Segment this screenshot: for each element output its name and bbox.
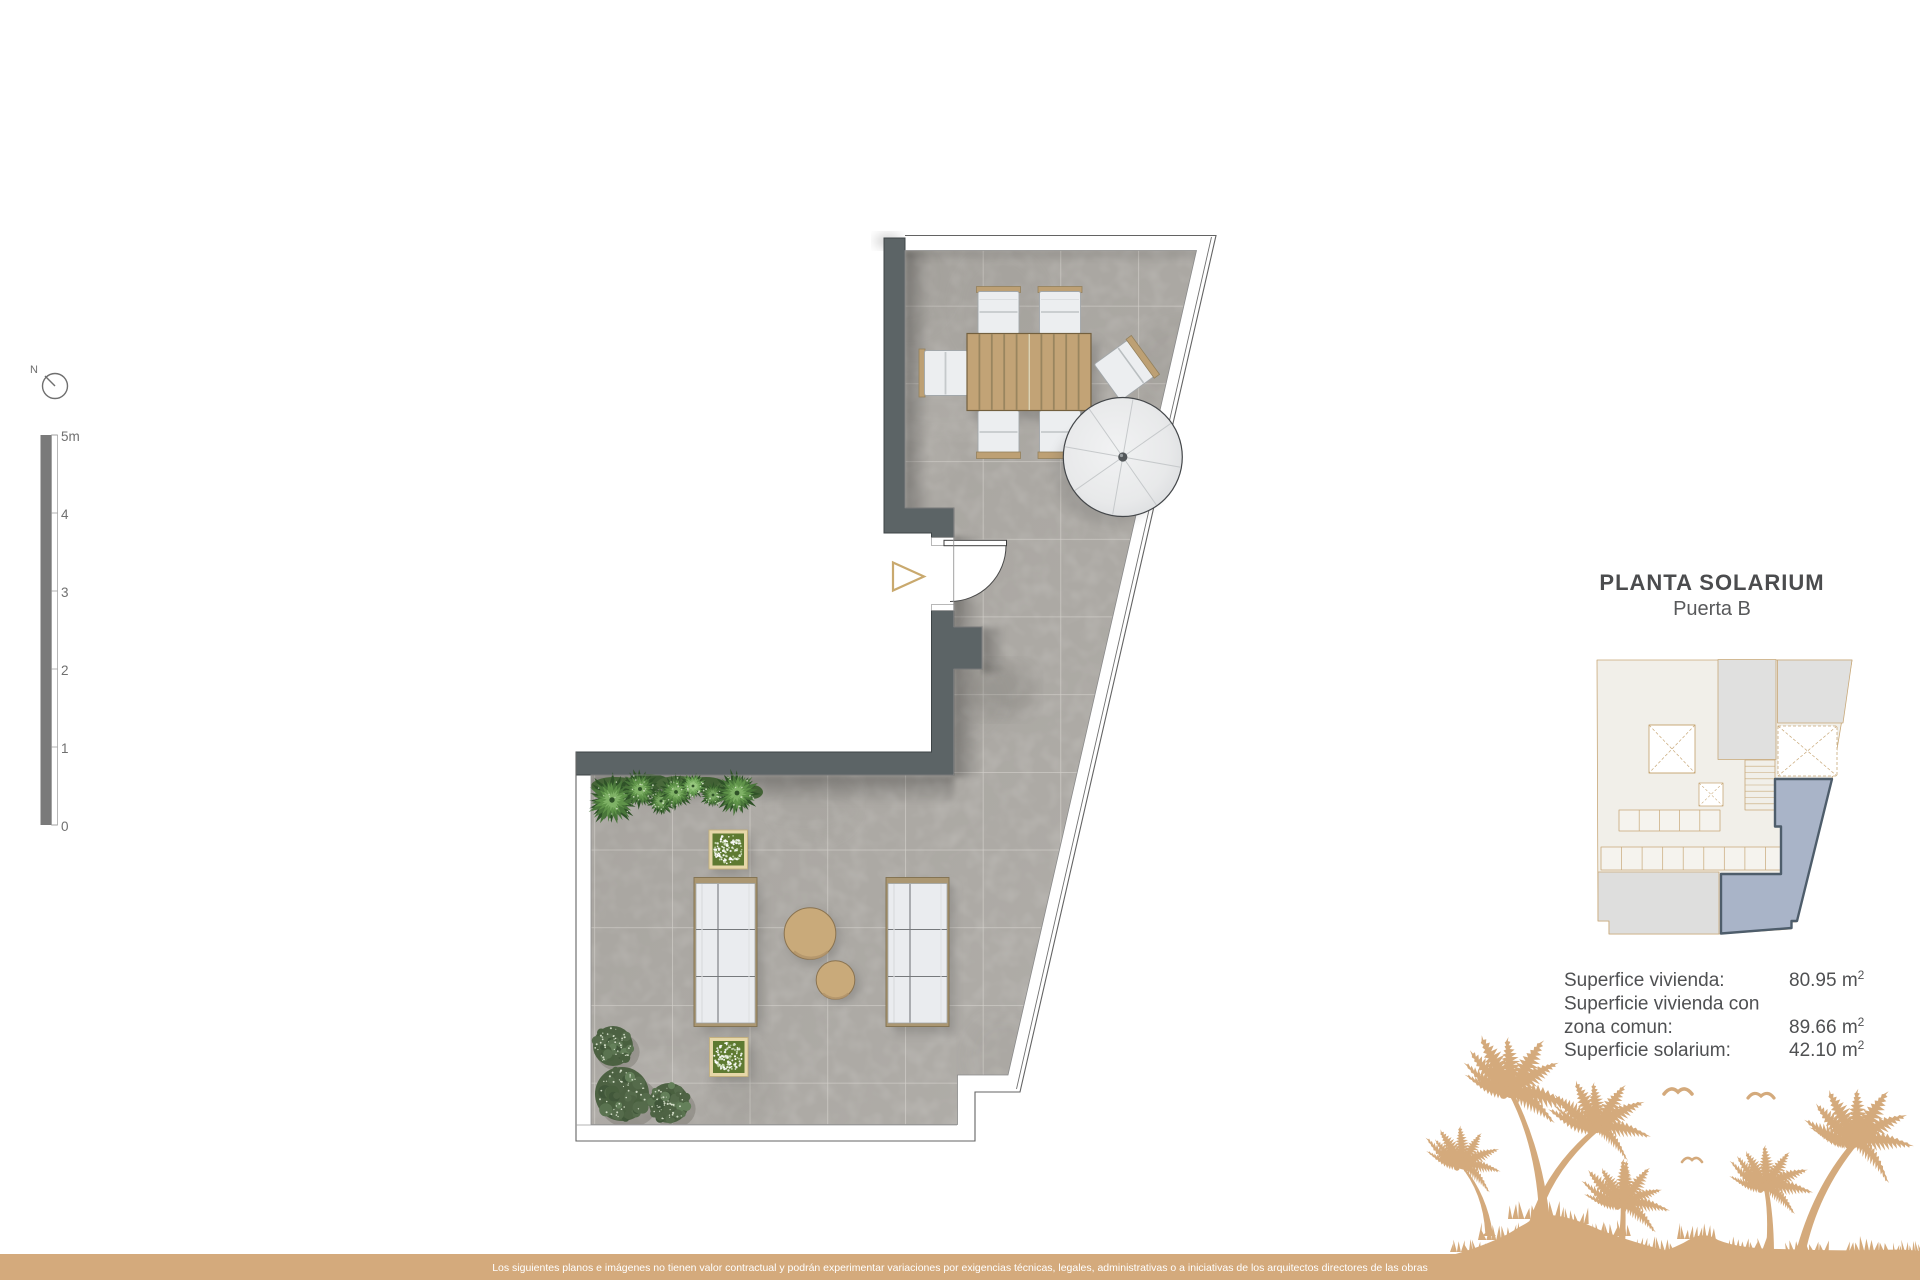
svg-text:89.66 m2: 89.66 m2 (1789, 1015, 1865, 1038)
svg-text:5m: 5m (61, 429, 80, 444)
svg-text:N: N (30, 364, 38, 376)
svg-text:1: 1 (61, 741, 69, 756)
svg-text:Los siguientes planos e imágen: Los siguientes planos e imágenes no tien… (492, 1262, 1428, 1274)
svg-text:Superficie solarium:: Superficie solarium: (1564, 1040, 1731, 1061)
svg-text:3: 3 (61, 585, 69, 600)
svg-text:80.95 m2: 80.95 m2 (1789, 968, 1865, 991)
svg-text:Superfice vivienda:: Superfice vivienda: (1564, 970, 1725, 991)
svg-text:4: 4 (61, 507, 69, 522)
svg-text:2: 2 (61, 663, 69, 678)
svg-text:Puerta B: Puerta B (1673, 598, 1751, 620)
svg-text:zona comun:: zona comun: (1564, 1017, 1673, 1038)
svg-text:Superficie vivienda con: Superficie vivienda con (1564, 994, 1759, 1015)
svg-text:0: 0 (61, 819, 69, 834)
svg-text:42.10 m2: 42.10 m2 (1789, 1038, 1865, 1061)
svg-text:PLANTA SOLARIUM: PLANTA SOLARIUM (1599, 570, 1824, 595)
